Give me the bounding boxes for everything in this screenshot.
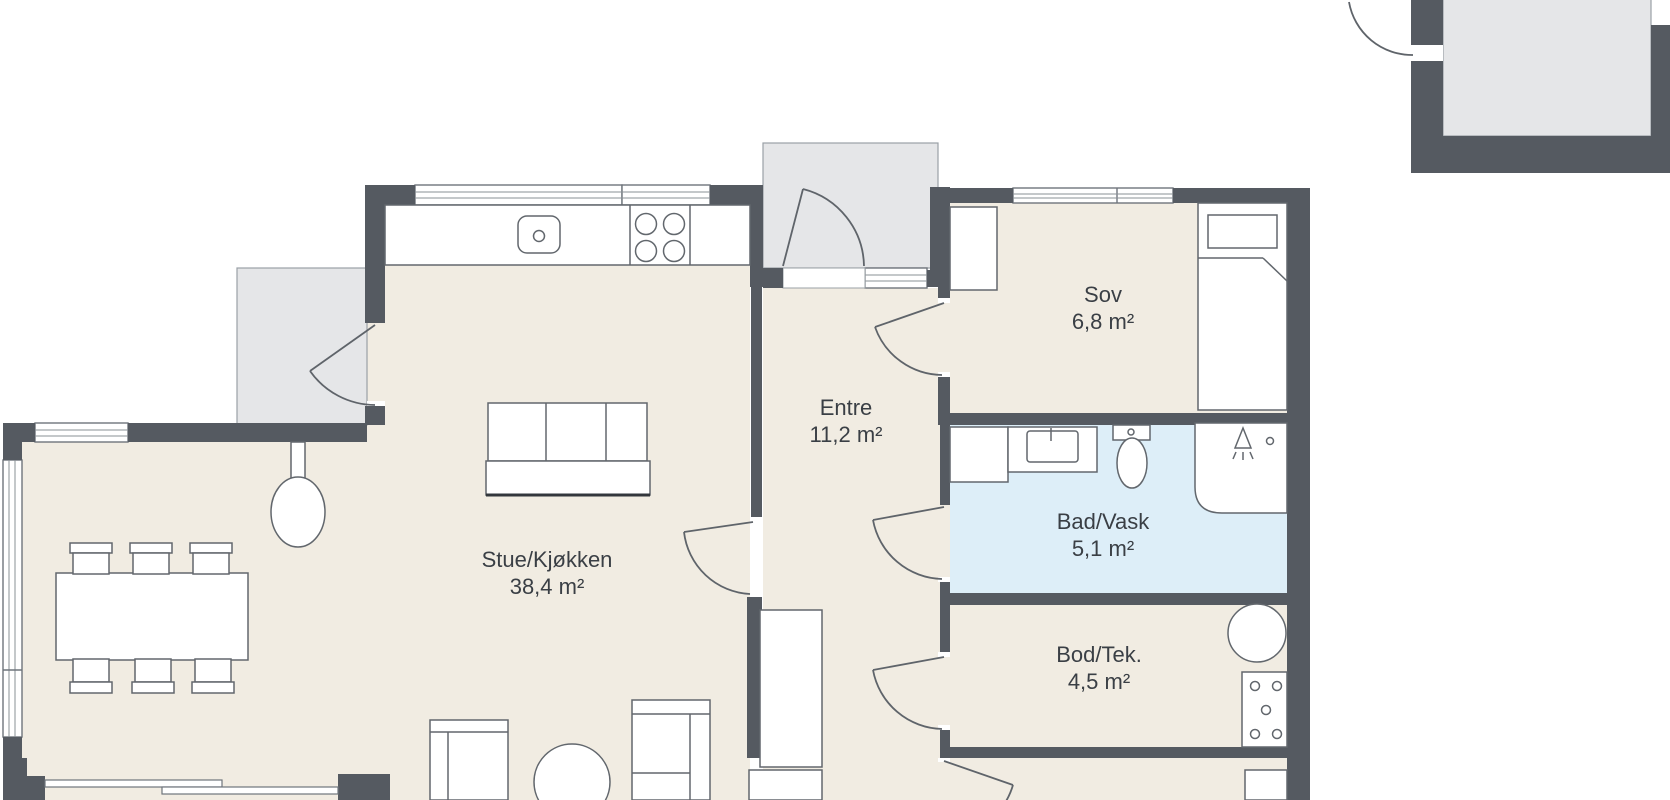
armchair-right bbox=[632, 700, 710, 800]
sov-window bbox=[1013, 188, 1173, 203]
armchair-left bbox=[430, 720, 508, 800]
water-heater-icon bbox=[1228, 604, 1286, 662]
front-door-sill bbox=[783, 268, 865, 288]
dining-window bbox=[35, 423, 128, 442]
entrance-porch bbox=[763, 143, 938, 268]
sov-wardrobe bbox=[950, 207, 997, 290]
shower-icon bbox=[1195, 423, 1287, 513]
kitchen-sink-icon bbox=[518, 216, 560, 253]
floorplan-drawing bbox=[0, 0, 1670, 800]
bed bbox=[1198, 203, 1287, 410]
vanity-sink-icon bbox=[1008, 427, 1097, 472]
entre-closet bbox=[749, 610, 822, 800]
south-room-furniture bbox=[1245, 770, 1287, 800]
patio-area bbox=[237, 268, 367, 425]
sofa bbox=[486, 403, 650, 495]
annex-door bbox=[1349, 2, 1413, 55]
electrical-panel-icon bbox=[1242, 672, 1287, 747]
kitchen-counter bbox=[385, 205, 750, 265]
floorplan-canvas: Stue/Kjøkken 38,4 m² Entre 11,2 m² Sov 6… bbox=[0, 0, 1670, 800]
annex-interior bbox=[1443, 0, 1651, 136]
left-wall-window bbox=[3, 460, 22, 737]
washing-machine-icon bbox=[950, 427, 1008, 482]
entre-sidelight-window bbox=[865, 268, 927, 288]
dining-table bbox=[56, 573, 248, 660]
kitchen-window bbox=[415, 185, 710, 205]
